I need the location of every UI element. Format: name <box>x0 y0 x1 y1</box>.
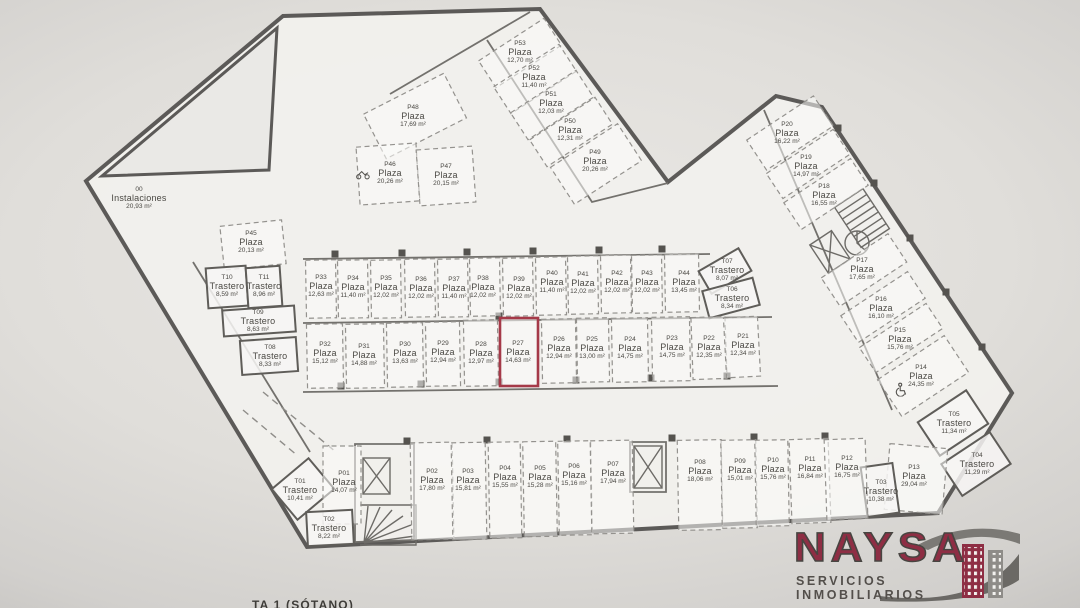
room-label-P46: P46Plaza20,26 m² <box>377 161 403 186</box>
room-label-P22: P22Plaza12,35 m² <box>696 335 722 360</box>
room-label-P33: P33Plaza12,63 m² <box>308 274 334 299</box>
room-label-T08: T08Trastero8,33 m² <box>253 344 288 369</box>
room-label-P28: P28Plaza12,97 m² <box>468 341 494 366</box>
room-labels-layer: P53Plaza12,70 m²P52Plaza11,40 m²P51Plaza… <box>0 0 1080 608</box>
room-label-T01: T01Trastero10,41 m² <box>283 478 318 503</box>
room-label-P34: P34Plaza11,40 m² <box>340 275 365 300</box>
room-label-P43: P43Plaza12,02 m² <box>634 270 660 295</box>
room-label-P44: P44Plaza13,45 m² <box>671 270 697 295</box>
room-label-P14: P14Plaza24,35 m² <box>908 364 934 389</box>
room-label-P01: P01Plaza14,07 m² <box>331 470 357 495</box>
room-label-P19: P19Plaza14,97 m² <box>793 154 819 179</box>
room-label-P12: P12Plaza16,75 m² <box>834 455 860 480</box>
room-label-P20: P20Plaza16,22 m² <box>774 121 800 146</box>
room-label-P40: P40Plaza11,40 m² <box>539 270 564 295</box>
room-label-T06: T06Trastero8,34 m² <box>715 286 750 311</box>
room-label-P24: P24Plaza14,75 m² <box>617 336 643 361</box>
room-label-P52: P52Plaza11,40 m² <box>521 65 546 90</box>
room-label-P41: P41Plaza12,02 m² <box>570 271 596 296</box>
room-label-P18: P18Plaza16,55 m² <box>811 183 837 208</box>
room-label-P25: P25Plaza13,00 m² <box>579 336 605 361</box>
room-label-T09: T09Trastero8,63 m² <box>241 309 276 334</box>
naysa-logo: NAYSA SERVICIOS INMOBILIARIOS <box>788 524 1022 604</box>
plan-caption: TA 1 (SÓTANO) <box>252 598 354 608</box>
room-label-P02: P02Plaza17,80 m² <box>419 468 445 493</box>
room-label-P03: P03Plaza15,81 m² <box>455 468 481 493</box>
room-label-P37: P37Plaza11,40 m² <box>441 276 466 301</box>
room-label-T07: T07Trastero8,07 m² <box>710 258 745 283</box>
room-label-T02: T02Trastero8,22 m² <box>312 516 347 541</box>
room-label-P49: P49Plaza20,26 m² <box>582 149 608 174</box>
room-label-P27: P27Plaza14,63 m² <box>505 340 531 365</box>
motorcycle-icon <box>356 167 371 185</box>
room-label-T10: T10Trastero8,59 m² <box>210 274 245 299</box>
room-label-P07: P07Plaza17,94 m² <box>600 461 626 486</box>
room-label-P51: P51Plaza12,03 m² <box>538 91 564 116</box>
room-label-P48: P48Plaza17,69 m² <box>400 104 426 129</box>
room-label-P11: P11Plaza16,84 m² <box>797 456 823 481</box>
room-label-P09: P09Plaza15,01 m² <box>727 458 753 483</box>
room-label-P26: P26Plaza12,94 m² <box>546 336 572 361</box>
room-label-P08: P08Plaza18,06 m² <box>687 459 713 484</box>
room-label-P53: P53Plaza12,70 m² <box>507 40 533 65</box>
room-label-P16: P16Plaza16,10 m² <box>868 296 894 321</box>
floorplan-photo: P53Plaza12,70 m²P52Plaza11,40 m²P51Plaza… <box>0 0 1080 608</box>
wheelchair-icon <box>895 383 907 402</box>
room-label-P42: P42Plaza12,02 m² <box>604 270 630 295</box>
logo-tagline: SERVICIOS INMOBILIARIOS <box>796 574 1022 602</box>
room-label-P21: P21Plaza12,34 m² <box>730 333 756 358</box>
room-label-T11: T11Trastero8,96 m² <box>247 274 282 299</box>
room-label-P45: P45Plaza20,13 m² <box>238 230 264 255</box>
room-label-P29: P29Plaza12,94 m² <box>430 340 456 365</box>
room-label-P39: P39Plaza12,02 m² <box>506 276 532 301</box>
room-label-P47: P47Plaza20,15 m² <box>433 163 459 188</box>
room-label-00: 00Instalaciones20,93 m² <box>111 186 166 211</box>
room-label-P17: P17Plaza17,65 m² <box>849 257 875 282</box>
room-label-P06: P06Plaza15,16 m² <box>561 463 587 488</box>
room-label-P32: P32Plaza15,12 m² <box>312 341 338 366</box>
room-label-P35: P35Plaza12,02 m² <box>373 275 399 300</box>
room-label-P38: P38Plaza12,02 m² <box>470 275 496 300</box>
room-label-P50: P50Plaza12,31 m² <box>557 118 583 143</box>
room-label-P04: P04Plaza15,55 m² <box>492 465 518 490</box>
room-label-P13: P13Plaza29,04 m² <box>901 464 927 489</box>
logo-name: NAYSA <box>794 528 969 568</box>
room-label-T03: T03Trastero10,38 m² <box>864 479 899 504</box>
room-label-P15: P15Plaza15,76 m² <box>887 327 913 352</box>
room-label-T04: T04Trastero11,29 m² <box>960 452 995 477</box>
room-label-P30: P30Plaza13,63 m² <box>392 341 418 366</box>
room-label-P10: P10Plaza15,76 m² <box>760 457 786 482</box>
room-label-P05: P05Plaza15,28 m² <box>527 465 553 490</box>
room-label-T05: T05Trastero11,34 m² <box>937 411 972 436</box>
room-label-P36: P36Plaza12,02 m² <box>408 276 434 301</box>
room-label-P31: P31Plaza14,88 m² <box>351 343 377 368</box>
room-label-P23: P23Plaza14,75 m² <box>659 335 685 360</box>
